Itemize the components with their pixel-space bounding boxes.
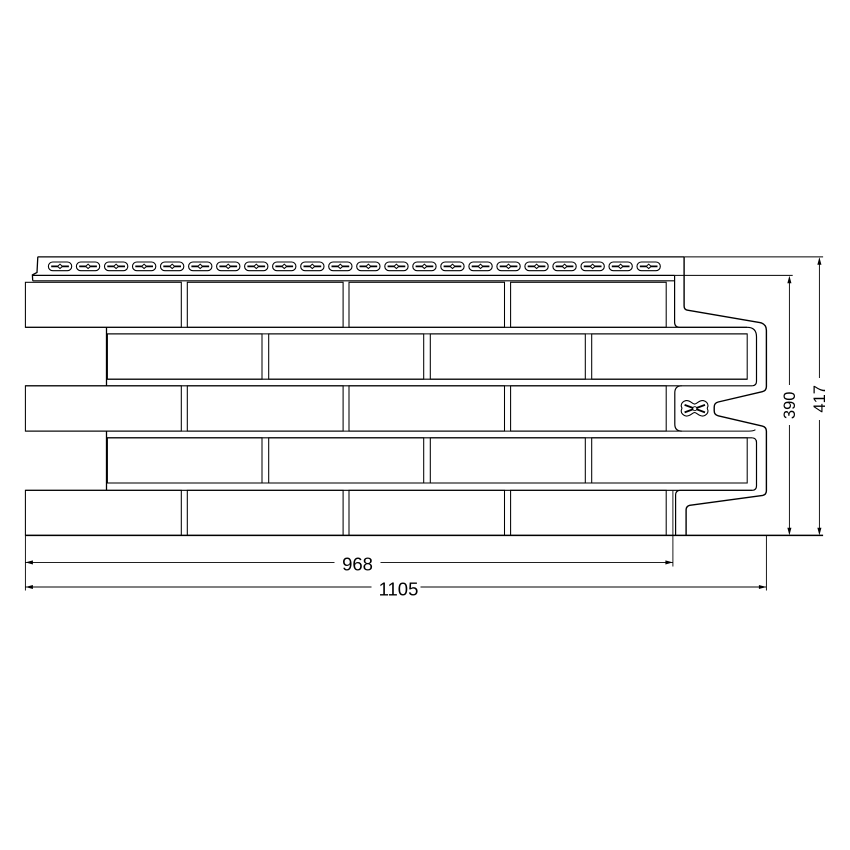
svg-text:390: 390: [781, 392, 799, 420]
svg-text:1105: 1105: [379, 578, 419, 599]
svg-text:968: 968: [342, 554, 373, 575]
svg-text:417: 417: [811, 385, 829, 413]
